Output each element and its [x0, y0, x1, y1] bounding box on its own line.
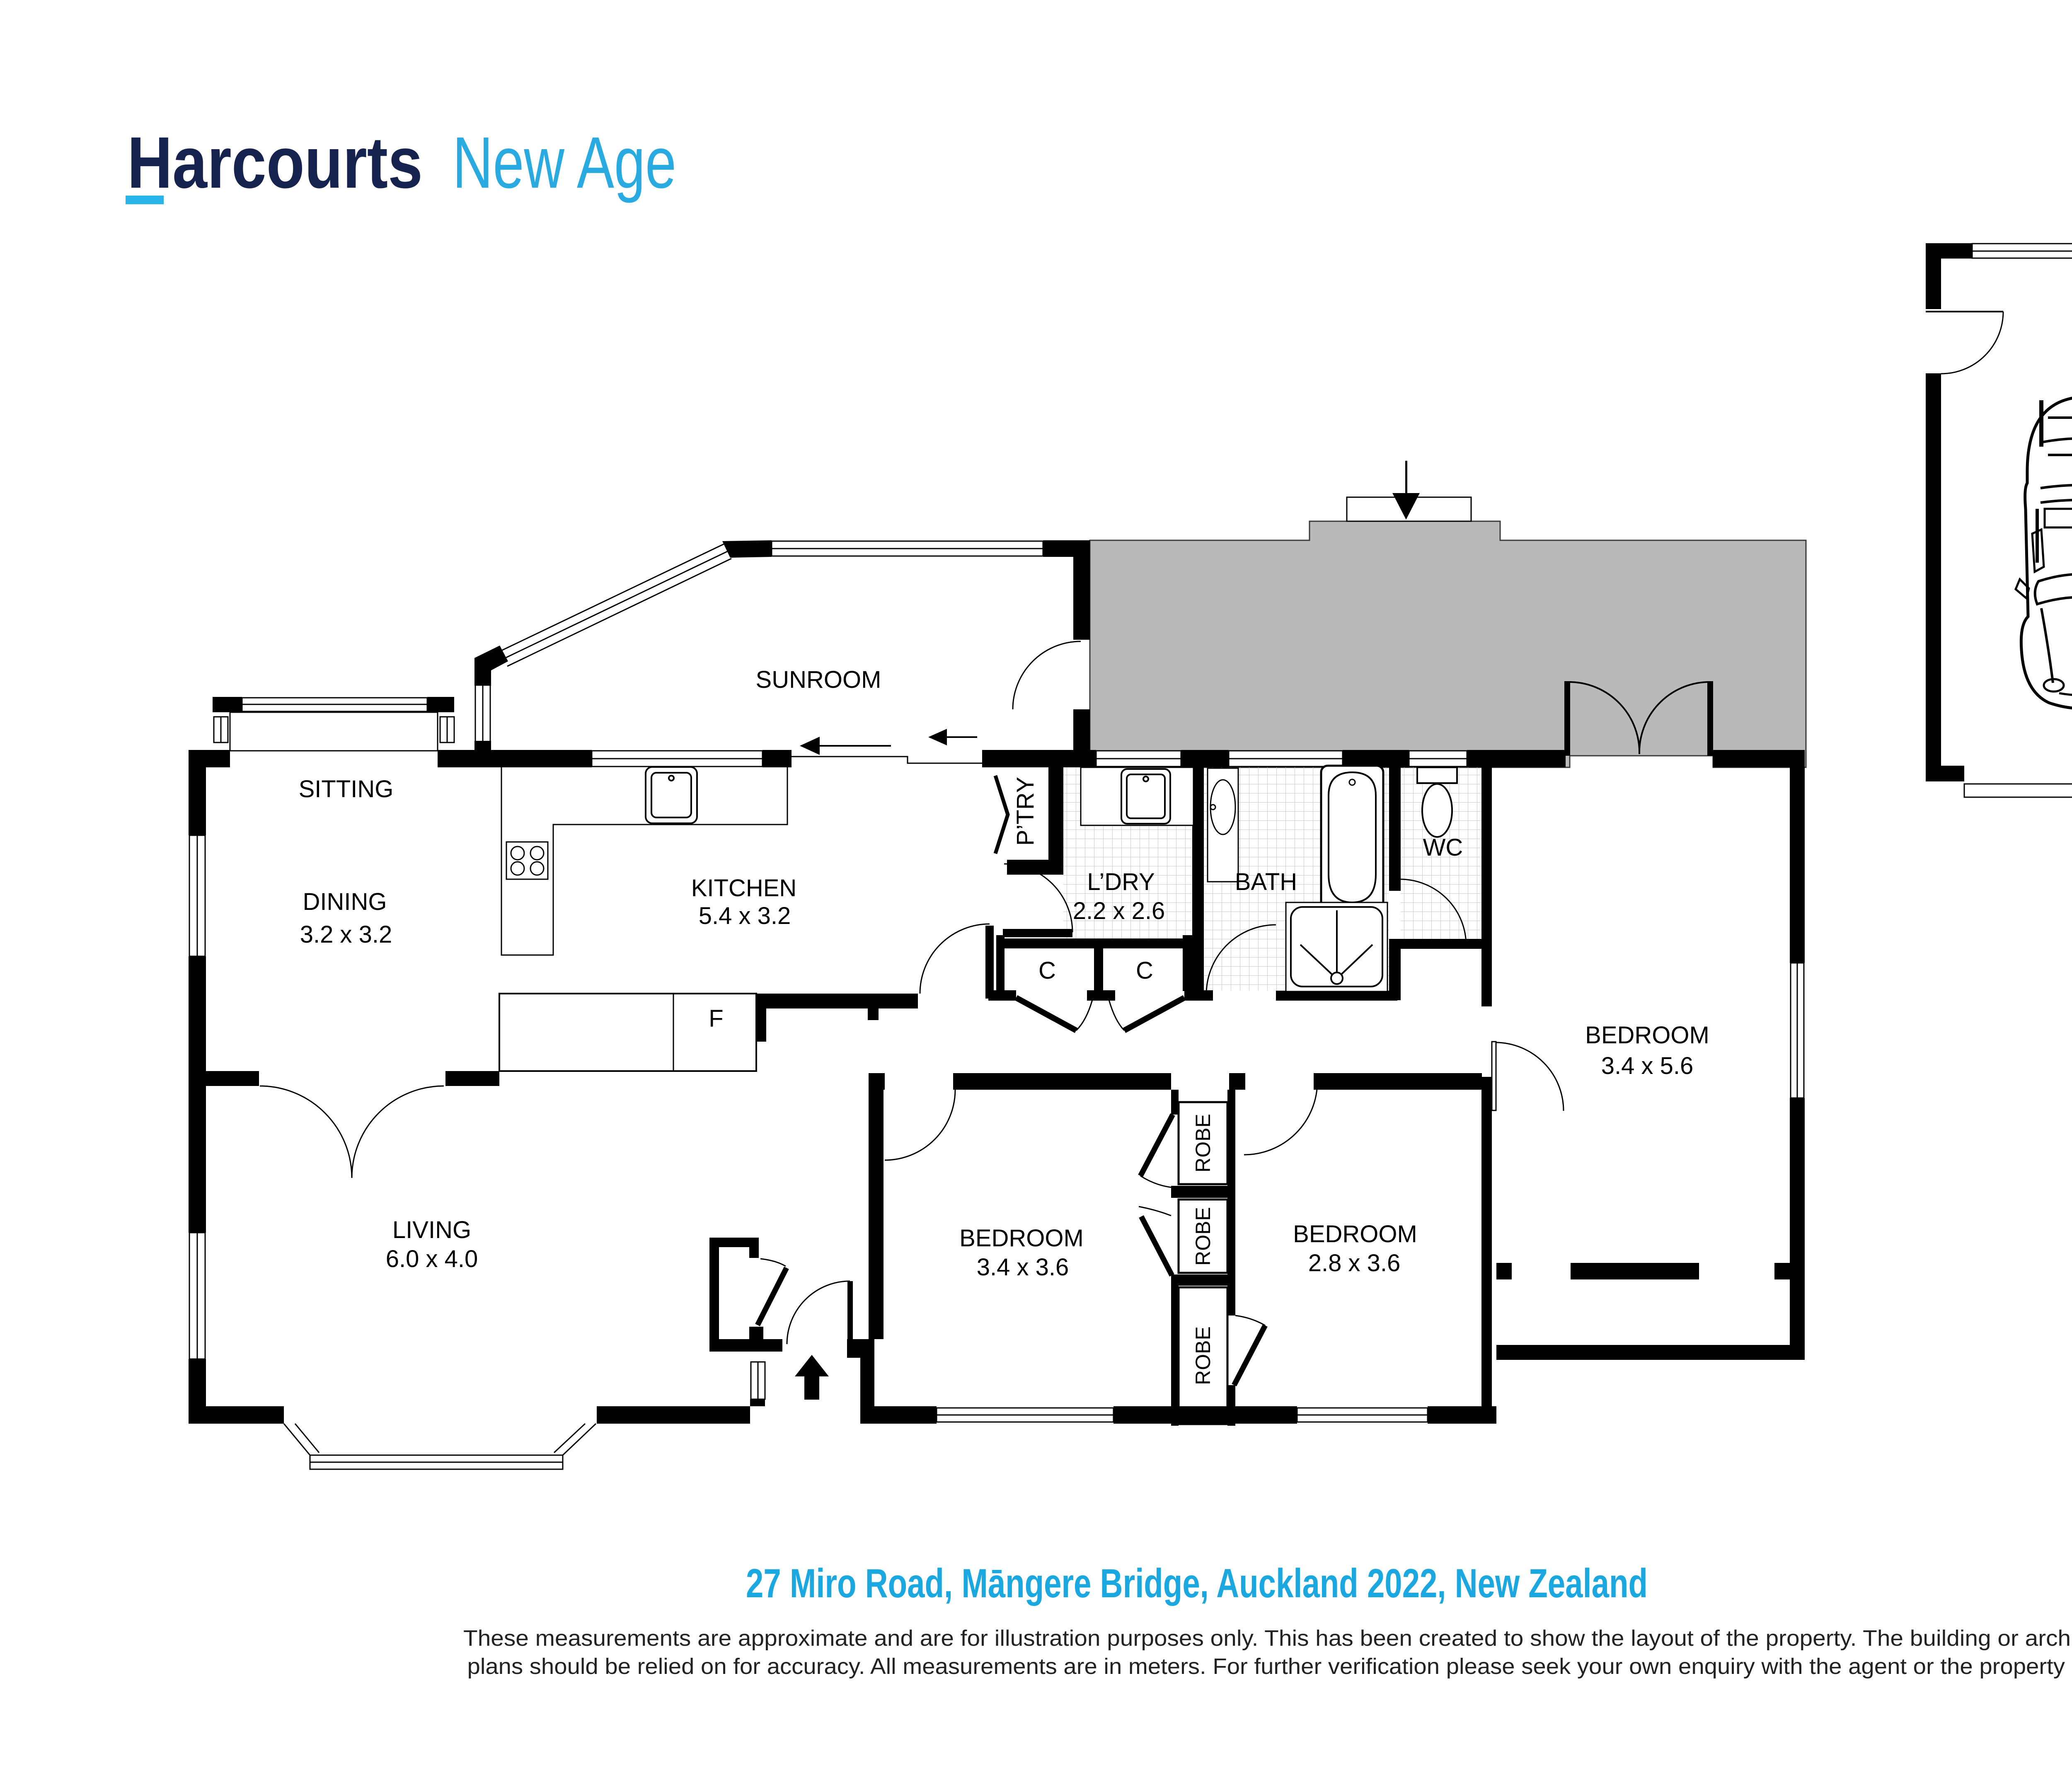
svg-text:BEDROOM: BEDROOM: [1293, 1221, 1417, 1248]
svg-text:3.4 x 3.6: 3.4 x 3.6: [977, 1254, 1069, 1281]
svg-text:27 Miro Road, Māngere Bridge,: 27 Miro Road, Māngere Bridge, Auckland 2…: [746, 1560, 1648, 1606]
svg-text:SITTING: SITTING: [299, 776, 394, 803]
svg-text:3.4 x 5.6: 3.4 x 5.6: [1601, 1052, 1693, 1079]
svg-text:5.4 x 3.2: 5.4 x 3.2: [699, 902, 791, 929]
svg-text:LIVING: LIVING: [392, 1216, 471, 1243]
svg-text:These measurements are approxi: These measurements are approximate and a…: [463, 1626, 2072, 1651]
svg-text:P’TRY: P’TRY: [1012, 777, 1039, 846]
svg-text:DINING: DINING: [303, 888, 387, 915]
svg-text:KITCHEN: KITCHEN: [691, 875, 797, 902]
svg-text:SUNROOM: SUNROOM: [756, 666, 881, 693]
svg-text:F: F: [709, 1005, 723, 1032]
svg-text:6.0 x 4.0: 6.0 x 4.0: [386, 1245, 478, 1272]
svg-text:2.2 x 2.6: 2.2 x 2.6: [1073, 897, 1165, 924]
svg-text:Harcourts: Harcourts: [127, 122, 423, 203]
svg-text:New Age: New Age: [453, 122, 676, 203]
svg-text:2.8 x 3.6: 2.8 x 3.6: [1308, 1250, 1400, 1277]
svg-text:C: C: [1038, 957, 1056, 984]
svg-text:L’DRY: L’DRY: [1087, 868, 1155, 895]
svg-text:BEDROOM: BEDROOM: [1585, 1022, 1709, 1049]
svg-text:ROBE: ROBE: [1191, 1326, 1215, 1385]
svg-text:C: C: [1136, 957, 1153, 984]
svg-text:3.2 x 3.2: 3.2 x 3.2: [300, 921, 392, 948]
svg-text:BEDROOM: BEDROOM: [959, 1225, 1084, 1252]
svg-text:plans should be relied on for: plans should be relied on for accuracy. …: [467, 1654, 2072, 1679]
svg-text:ROBE: ROBE: [1191, 1207, 1215, 1266]
svg-text:BATH: BATH: [1235, 868, 1297, 895]
svg-text:ROBE: ROBE: [1191, 1114, 1215, 1173]
svg-text:WC: WC: [1423, 834, 1463, 861]
